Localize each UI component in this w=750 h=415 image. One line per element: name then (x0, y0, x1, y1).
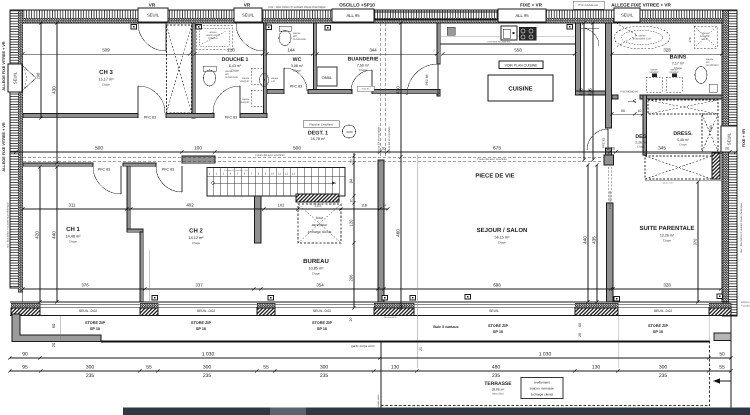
svg-text:Chape: Chape (359, 68, 368, 72)
svg-text:12,26 m²: 12,26 m² (660, 234, 675, 238)
svg-text:DEGT. 1: DEGT. 1 (308, 131, 328, 137)
svg-text:ascenseur: ascenseur (312, 223, 329, 227)
svg-text:218: 218 (227, 48, 235, 53)
svg-text:mur : bloc béton R suivant étu: mur : bloc béton R suivant étude thermiq… (7, 201, 10, 247)
svg-text:PFC 83: PFC 83 (602, 138, 606, 149)
svg-text:SEUIL -0.02: SEUIL -0.02 (79, 309, 97, 313)
svg-text:55: 55 (719, 365, 725, 371)
svg-text:235: 235 (659, 373, 668, 379)
svg-text:VASQUE: VASQUE (240, 101, 250, 104)
svg-text:mur : bloc béton R suivant étu: mur : bloc béton R suivant étude thermiq… (268, 5, 326, 9)
svg-text:1 030: 1 030 (539, 352, 552, 358)
svg-text:Chape: Chape (312, 272, 321, 276)
svg-text:300: 300 (659, 365, 668, 371)
svg-text:BAIGNOIRE ILOT: BAIGNOIRE ILOT (633, 38, 652, 41)
svg-text:Chape: Chape (293, 69, 302, 73)
svg-text:STORE ZIP: STORE ZIP (312, 321, 332, 325)
svg-text:235: 235 (86, 373, 95, 379)
svg-text:420: 420 (35, 231, 40, 239)
svg-text:130: 130 (391, 365, 400, 371)
svg-text:évac.SL: évac.SL (362, 88, 371, 91)
svg-text:298: 298 (36, 72, 41, 79)
svg-text:PFC 83: PFC 83 (225, 116, 237, 120)
svg-text:futur: futur (316, 216, 324, 220)
svg-text:SEUIL: SEUIL (147, 13, 160, 18)
svg-text:ALLEGE FIXE VITREE + VR: ALLEGE FIXE VITREE + VR (2, 41, 6, 91)
svg-text:WC: WC (706, 61, 710, 64)
svg-text:509: 509 (102, 48, 110, 53)
svg-text:WC: WC (293, 57, 302, 63)
svg-text:Escalier 2/4 tournant - h2p: Escalier 2/4 tournant - h2p (224, 169, 248, 172)
svg-text:FIXE + VR: FIXE + VR (742, 129, 746, 147)
svg-text:mur : bloc béton R suivant étu: mur : bloc béton R suivant étude thermiq… (740, 203, 743, 253)
svg-text:10: 10 (638, 109, 642, 113)
svg-text:24: 24 (383, 204, 387, 208)
svg-text:SEUIL -0.02: SEUIL -0.02 (654, 309, 672, 313)
svg-text:344: 344 (369, 48, 377, 53)
svg-text:SP 10: SP 10 (90, 327, 100, 331)
svg-text:PVC module ext.: PVC module ext. (578, 4, 598, 7)
svg-text:BUREAU: BUREAU (303, 258, 329, 265)
svg-text:Chape: Chape (679, 144, 687, 147)
svg-text:6,43 m²: 6,43 m² (229, 64, 242, 68)
svg-text:CUISINE: CUISINE (508, 86, 532, 93)
svg-text:Poutre BA avec retombée: Poutre BA avec retombée (477, 158, 507, 161)
svg-text:attente: attente (701, 32, 709, 35)
svg-text:55: 55 (263, 365, 269, 371)
svg-text:5,49 m²: 5,49 m² (677, 138, 689, 142)
svg-text:PIECE DE VIE: PIECE DE VIE (475, 173, 514, 180)
svg-text:attente: attente (242, 77, 250, 80)
svg-text:SUSPENDU: SUSPENDU (225, 76, 239, 79)
svg-text:300: 300 (203, 365, 212, 371)
svg-text:2,26 m²: 2,26 m² (635, 141, 647, 145)
svg-text:Chape: Chape (69, 240, 78, 244)
svg-text:PFC 83: PFC 83 (98, 168, 110, 172)
svg-text:revêtement: revêtement (534, 381, 550, 385)
svg-text:14,48 m²: 14,48 m² (66, 235, 82, 239)
svg-text:Chape: Chape (192, 241, 201, 245)
svg-text:Chape: Chape (674, 66, 683, 70)
svg-text:Plancher Chauffant: Plancher Chauffant (310, 123, 333, 126)
svg-text:435: 435 (592, 236, 597, 244)
svg-text:206: 206 (349, 274, 354, 282)
svg-text:PFC 83: PFC 83 (144, 116, 156, 120)
svg-text:VOIR PLAN CUISINE: VOIR PLAN CUISINE (505, 64, 539, 68)
svg-text:SP 10: SP 10 (493, 330, 503, 334)
svg-text:TERRASSE: TERRASSE (484, 381, 512, 387)
svg-text:500: 500 (95, 146, 103, 152)
svg-text:FIXE + VR: FIXE + VR (520, 3, 543, 8)
svg-text:90: 90 (22, 352, 28, 358)
svg-text:SEUIL: SEUIL (489, 309, 499, 313)
svg-text:SOLID.: SOLID. (701, 38, 709, 41)
svg-text:Façades: Façades (741, 305, 750, 308)
svg-text:PFC 83: PFC 83 (162, 168, 174, 172)
svg-text:235: 235 (320, 373, 329, 379)
svg-text:attente: attente (706, 58, 714, 61)
svg-text:337: 337 (195, 283, 203, 288)
svg-text:ALL 95: ALL 95 (515, 13, 529, 18)
svg-text:attente: attente (638, 35, 646, 38)
svg-text:300: 300 (86, 365, 95, 371)
svg-text:15,17 m²: 15,17 m² (99, 78, 115, 82)
svg-text:Béton fibré: Béton fibré (492, 393, 504, 396)
svg-text:Chape: Chape (102, 83, 111, 87)
svg-text:60: 60 (51, 323, 56, 328)
svg-text:39,86 m²: 39,86 m² (492, 388, 505, 392)
svg-text:SEUIL: SEUIL (13, 71, 18, 84)
svg-text:60: 60 (578, 323, 582, 327)
svg-text:402: 402 (186, 203, 194, 208)
svg-text:Chape: Chape (637, 146, 645, 149)
svg-text:ALLEGE FIXE VITREE + VR: ALLEGE FIXE VITREE + VR (611, 3, 671, 8)
svg-text:P SCRIGNO 80: P SCRIGNO 80 (609, 190, 612, 209)
svg-text:688: 688 (493, 283, 501, 288)
svg-text:BUANDERIE: BUANDERIE (348, 57, 379, 63)
svg-text:+0,00: +0,00 (345, 130, 353, 134)
svg-text:ALLEGE FIXE VITREE + VR: ALLEGE FIXE VITREE + VR (2, 122, 6, 172)
svg-text:480: 480 (492, 365, 501, 371)
svg-text:328: 328 (663, 283, 671, 288)
svg-text:COUPLE: COUPLE (208, 37, 218, 40)
svg-text:345: 345 (658, 146, 666, 152)
svg-text:Baie 3 vantaux: Baie 3 vantaux (433, 325, 458, 329)
svg-text:STORE ZIP: STORE ZIP (648, 324, 668, 328)
svg-text:14,12 m²: 14,12 m² (189, 236, 205, 240)
svg-text:Poutre BA en retombée: Poutre BA en retombée (388, 126, 391, 154)
svg-text:80: 80 (621, 109, 625, 113)
svg-text:20: 20 (51, 342, 56, 347)
svg-text:311: 311 (69, 203, 77, 208)
svg-text:118: 118 (361, 204, 367, 208)
svg-text:OSCILLO +SP10: OSCILLO +SP10 (339, 3, 375, 8)
svg-text:20: 20 (349, 318, 353, 322)
svg-text:SP 10: SP 10 (653, 330, 663, 334)
svg-text:370: 370 (693, 238, 698, 245)
svg-text:Poutre BA avec retombée: Poutre BA avec retombée (255, 154, 285, 157)
svg-text:430: 430 (396, 86, 401, 94)
svg-text:20: 20 (350, 199, 354, 203)
svg-text:VASQUE: VASQUE (669, 71, 679, 74)
svg-text:PFC 83: PFC 83 (425, 74, 429, 85)
svg-text:ATTENTE PLOMBERIE: ATTENTE PLOMBERIE (487, 41, 511, 44)
svg-text:122: 122 (315, 203, 322, 208)
svg-text:120: 120 (349, 219, 354, 227)
svg-text:STORE ZIP: STORE ZIP (85, 321, 105, 325)
svg-text:7,50 m²: 7,50 m² (357, 64, 370, 68)
svg-text:426: 426 (588, 88, 593, 96)
svg-text:SUSPENDU: SUSPENDU (706, 64, 719, 67)
svg-text:300: 300 (320, 365, 329, 371)
svg-text:20: 20 (725, 147, 729, 151)
svg-text:558: 558 (514, 48, 522, 53)
svg-text:370: 370 (688, 37, 692, 42)
svg-text:SP 10: SP 10 (196, 327, 206, 331)
svg-text:130: 130 (592, 365, 601, 371)
svg-text:VASQUE: VASQUE (240, 80, 250, 83)
svg-text:PFC 83: PFC 83 (290, 85, 302, 89)
svg-text:20: 20 (350, 159, 354, 163)
svg-text:garde-corps verre: garde-corps verre (351, 344, 375, 348)
svg-text:Chape: Chape (663, 239, 672, 243)
svg-text:Chape: Chape (498, 241, 507, 245)
svg-text:SEUIL: SEUIL (242, 13, 255, 18)
svg-text:L-M: L-M (271, 80, 275, 83)
svg-text:STORE ZIP: STORE ZIP (488, 324, 508, 328)
svg-text:20: 20 (578, 333, 582, 337)
svg-text:SEUIL -0.02: SEUIL -0.02 (313, 309, 331, 313)
svg-text:3,08 m²: 3,08 m² (291, 64, 304, 68)
svg-text:SUSPENDU: SUSPENDU (293, 38, 307, 41)
svg-text:235: 235 (203, 373, 212, 379)
svg-text:DEG: DEG (635, 134, 646, 140)
svg-text:VR: VR (244, 3, 251, 8)
svg-text:55: 55 (146, 365, 152, 371)
svg-text:243: 243 (709, 125, 713, 131)
svg-text:20: 20 (419, 347, 423, 351)
svg-text:DRESS.: DRESS. (673, 131, 693, 137)
svg-text:15,78 m²: 15,78 m² (311, 137, 326, 141)
svg-text:50: 50 (719, 352, 725, 358)
svg-text:376: 376 (81, 283, 89, 288)
svg-text:440: 440 (52, 231, 57, 239)
svg-text:Chape: Chape (231, 69, 240, 73)
svg-text:56,15 m²: 56,15 m² (495, 236, 511, 240)
svg-text:354: 354 (316, 283, 324, 288)
svg-text:20: 20 (382, 147, 386, 151)
svg-text:attente: attente (242, 98, 250, 101)
svg-text:Poutre BA en retombée: Poutre BA en retombée (378, 126, 381, 154)
svg-text:460: 460 (396, 229, 401, 237)
svg-text:328: 328 (663, 48, 671, 53)
svg-text:STORE ZIP: STORE ZIP (191, 321, 211, 325)
svg-text:430: 430 (579, 88, 584, 96)
svg-text:ALL 95: ALL 95 (346, 13, 360, 18)
svg-text:balcon +terrasse: balcon +terrasse (530, 387, 554, 391)
svg-text:attente: attente (271, 77, 279, 80)
svg-text:94: 94 (349, 178, 354, 183)
svg-text:95: 95 (22, 365, 28, 371)
svg-text:SEJOUR / SALON: SEJOUR / SALON (477, 227, 528, 234)
svg-text:10,85 m²: 10,85 m² (309, 267, 325, 271)
svg-text:SEUIL: SEUIL (621, 13, 634, 18)
svg-text:CH 1: CH 1 (66, 226, 80, 233)
svg-text:144: 144 (287, 48, 295, 53)
svg-text:DOUCHE 1: DOUCHE 1 (222, 57, 249, 63)
svg-text:430: 430 (52, 86, 57, 94)
svg-text:100: 100 (194, 146, 202, 152)
svg-text:SEUIL -0.02: SEUIL -0.02 (197, 309, 215, 313)
svg-text:20: 20 (611, 147, 615, 151)
svg-text:VASQUE: VASQUE (649, 71, 659, 74)
svg-text:440: 440 (583, 236, 588, 244)
svg-text:SUITE PARENTALE: SUITE PARENTALE (639, 225, 694, 232)
svg-text:P SCRIGNO 80: P SCRIGNO 80 (620, 91, 639, 94)
svg-text:7,17 m²: 7,17 m² (672, 62, 685, 66)
svg-text:garde robe: garde robe (663, 182, 674, 185)
svg-text:102: 102 (278, 203, 285, 208)
svg-text:mur banche: mur banche (384, 316, 397, 319)
svg-text:SP 10: SP 10 (317, 327, 327, 331)
svg-text:235: 235 (492, 373, 501, 379)
svg-text:CH 3: CH 3 (99, 69, 113, 76)
svg-text:OMAL: OMAL (322, 76, 333, 80)
svg-text:675: 675 (493, 146, 501, 152)
svg-text:à charge clients: à charge clients (308, 230, 332, 234)
svg-text:CH 2: CH 2 (189, 228, 203, 235)
svg-text:500: 500 (293, 146, 301, 152)
svg-text:SEUIL: SEUIL (727, 132, 732, 145)
svg-text:1 030: 1 030 (202, 352, 215, 358)
svg-text:VR: VR (149, 3, 156, 8)
svg-text:à charge clients: à charge clients (531, 393, 554, 397)
svg-text:DOUCHE: DOUCHE (700, 35, 710, 38)
svg-text:BAINS: BAINS (670, 55, 687, 61)
